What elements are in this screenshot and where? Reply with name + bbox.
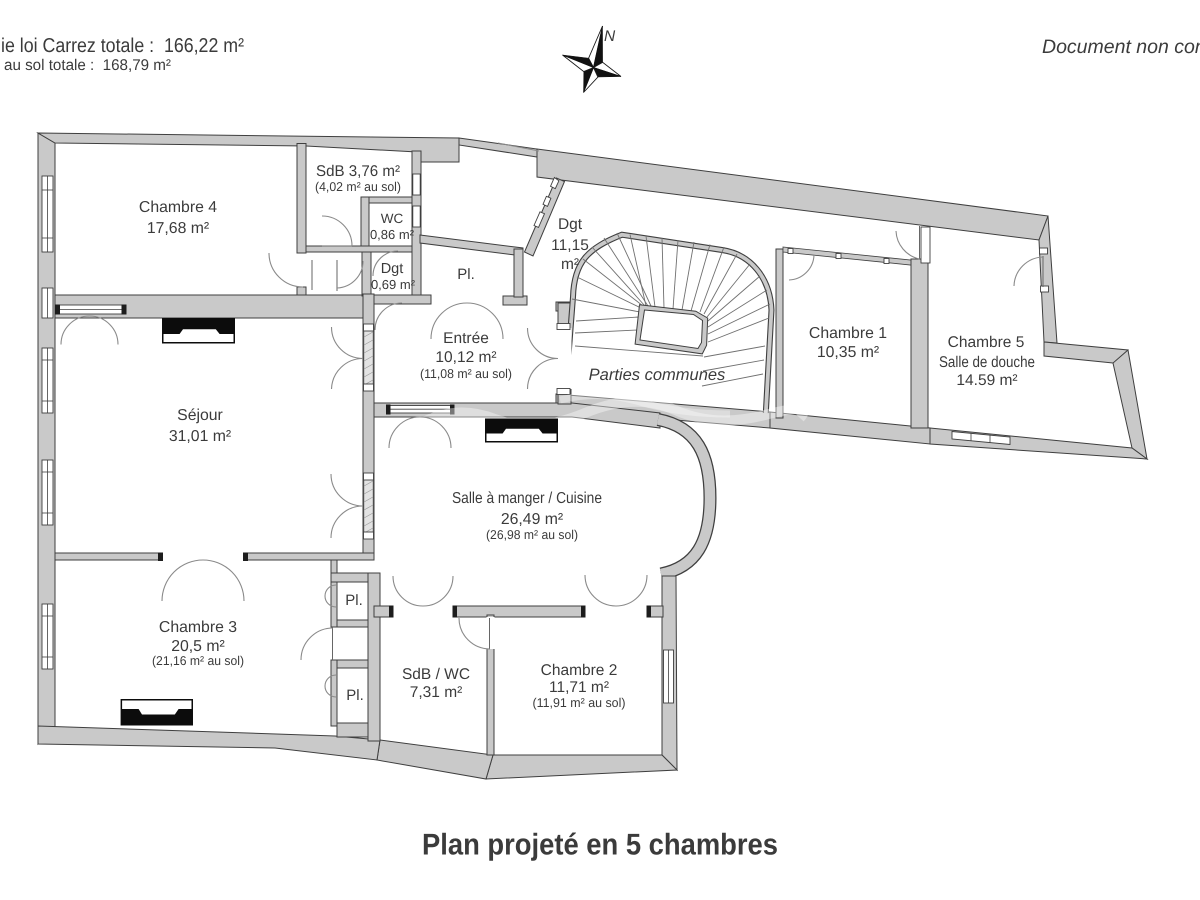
- svg-text:0,69 m²: 0,69 m²: [371, 277, 416, 292]
- svg-text:Pl.: Pl.: [345, 592, 363, 609]
- svg-text:Pl.: Pl.: [346, 687, 364, 704]
- svg-text:0,86 m²: 0,86 m²: [370, 227, 415, 242]
- svg-text:26,49 m²: 26,49 m²: [501, 511, 563, 528]
- svg-text:Parties communes: Parties communes: [589, 366, 726, 384]
- svg-text:Document non contractuel: Document non contractuel: [1042, 36, 1200, 58]
- svg-text:Chambre 1: Chambre 1: [809, 325, 887, 342]
- svg-text:Plan projeté en 5 chambres: Plan projeté en 5 chambres: [422, 829, 778, 862]
- svg-text:Dgt: Dgt: [381, 261, 404, 277]
- svg-text:Chambre 4: Chambre 4: [139, 199, 217, 216]
- svg-text:11,15: 11,15: [551, 237, 589, 254]
- svg-text:(11,08 m² au sol): (11,08 m² au sol): [420, 366, 512, 381]
- svg-text:Salle à manger / Cuisine: Salle à manger / Cuisine: [452, 490, 602, 507]
- svg-text:10,12 m²: 10,12 m²: [435, 349, 496, 366]
- svg-text:SdB / WC: SdB / WC: [402, 666, 470, 683]
- svg-text:m²: m²: [561, 256, 579, 273]
- svg-text:SdB 3,76 m²: SdB 3,76 m²: [316, 163, 400, 180]
- svg-text:au sol totale : 168,79 m²: au sol totale : 168,79 m²: [4, 57, 171, 74]
- svg-text:(11,91 m² au sol): (11,91 m² au sol): [533, 695, 626, 710]
- svg-text:WC: WC: [381, 211, 404, 226]
- svg-text:Dgt: Dgt: [558, 216, 583, 233]
- svg-text:31,01 m²: 31,01 m²: [169, 428, 231, 445]
- svg-text:Entrée: Entrée: [443, 330, 489, 347]
- svg-text:Chambre 3: Chambre 3: [159, 619, 237, 636]
- svg-text:17,68 m²: 17,68 m²: [147, 220, 209, 237]
- svg-text:Chambre 2: Chambre 2: [541, 662, 618, 679]
- svg-text:Salle de douche: Salle de douche: [939, 354, 1035, 371]
- svg-text:14.59 m²: 14.59 m²: [956, 372, 1017, 389]
- svg-text:ie loi Carrez totale : 166,22: ie loi Carrez totale : 166,22 m²: [1, 35, 244, 57]
- svg-text:Séjour: Séjour: [177, 407, 223, 424]
- svg-text:N: N: [604, 28, 616, 45]
- svg-text:(21,16 m² au sol): (21,16 m² au sol): [152, 653, 244, 668]
- svg-text:Chambre 5: Chambre 5: [948, 334, 1025, 351]
- svg-text:7,31 m²: 7,31 m²: [410, 684, 463, 701]
- svg-text:11,71 m²: 11,71 m²: [549, 679, 609, 696]
- svg-text:10,35 m²: 10,35 m²: [817, 344, 879, 361]
- svg-text:(4,02 m² au sol): (4,02 m² au sol): [315, 179, 401, 194]
- svg-text:(26,98 m² au sol): (26,98 m² au sol): [486, 527, 578, 542]
- svg-text:Pl.: Pl.: [457, 266, 475, 283]
